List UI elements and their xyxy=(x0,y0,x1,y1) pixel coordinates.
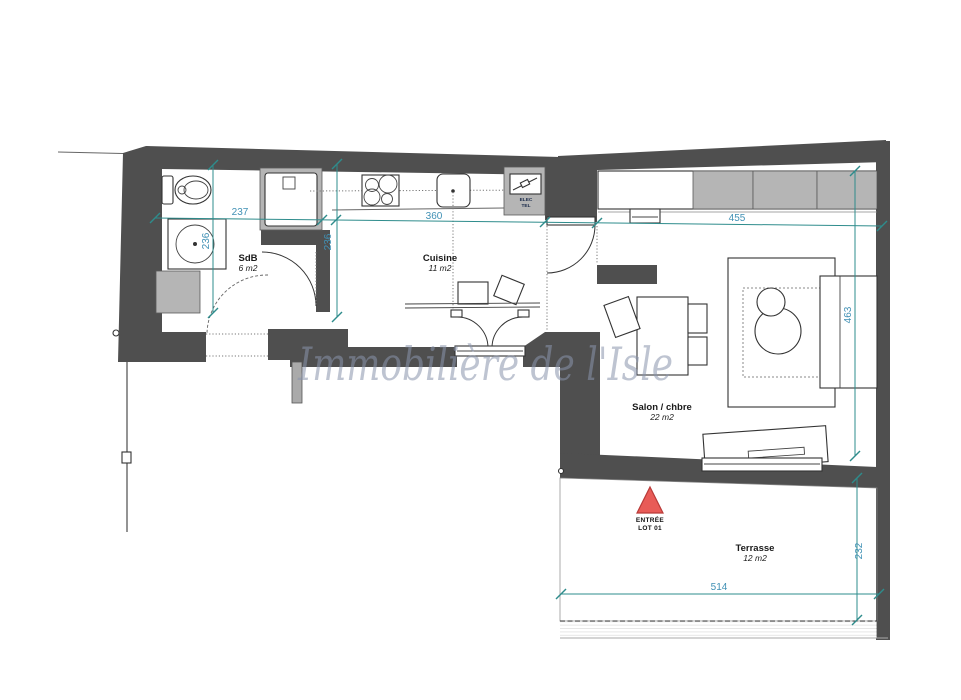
wall-top-left-wing xyxy=(146,146,560,175)
bed-headboard xyxy=(820,276,877,388)
wall-right xyxy=(876,141,890,640)
kitchen-fixtures: ELEC TEL xyxy=(310,167,545,311)
floor-plan-page: ELEC TEL xyxy=(0,0,961,700)
sdb-door-swing xyxy=(262,252,316,306)
closet-panel-1 xyxy=(693,171,753,209)
entrance-triangle-icon xyxy=(637,487,663,513)
kitchen-chair-icon xyxy=(494,275,524,304)
boundary-node-wall-corner xyxy=(113,330,119,336)
closet-panel-3 xyxy=(817,171,877,209)
entrance-marker: ENTRÉE LOT 01 xyxy=(636,487,665,532)
wall-end-node xyxy=(559,469,564,474)
wall-vestibule-top xyxy=(545,157,597,222)
terrace-decking xyxy=(560,478,877,621)
dining-chair-left xyxy=(604,297,640,338)
counter-edge xyxy=(332,208,504,210)
wall-salon-left-stub xyxy=(597,265,657,284)
french-door-left-leaf xyxy=(451,310,462,317)
kitchen-table-icon xyxy=(458,282,488,304)
terrace-decking-lower xyxy=(560,621,877,638)
dining-chair-right-1 xyxy=(688,304,707,333)
tel-label: TEL xyxy=(521,203,530,209)
entry-door-swing-dashed xyxy=(207,275,268,333)
boundary-node-bottom-left xyxy=(122,452,131,463)
wall-sdb-kitchen-top xyxy=(261,230,330,245)
dining-chair-right-2 xyxy=(688,337,707,365)
dim-salon-depth: 463 xyxy=(843,306,854,323)
floor-plan-canvas: ELEC TEL xyxy=(0,0,961,700)
salon-door-swing xyxy=(547,225,595,273)
entrance-label-2: LOT 01 xyxy=(638,525,662,532)
entrance-label-1: ENTRÉE xyxy=(636,515,665,524)
dim-cuisine-depth: 236 xyxy=(323,233,334,250)
salon-door-leaf xyxy=(547,217,595,225)
cuisine-area: 11 m2 xyxy=(429,263,452,273)
dim-terrasse-depth: 232 xyxy=(854,542,865,559)
bathroom-niche xyxy=(156,271,200,313)
agency-watermark: Immobilière de l'Isle xyxy=(297,337,673,391)
wall-top-salon xyxy=(558,140,886,174)
dim-sdb-depth: 236 xyxy=(201,232,212,249)
dim-salon-width: 455 xyxy=(729,213,746,224)
terrace xyxy=(560,478,888,638)
toilet-bowl-icon xyxy=(175,176,211,204)
dim-cuisine-width: 360 xyxy=(426,211,443,222)
washbasin-drain xyxy=(193,242,197,246)
wall-sdb-kitchen-strip xyxy=(316,245,330,312)
closet-panel-2 xyxy=(753,171,817,209)
shower-tray-icon xyxy=(265,173,317,226)
elec-label: ELEC xyxy=(520,197,533,203)
bed-pillow-small xyxy=(757,288,785,316)
bed-pillow-large xyxy=(755,308,801,354)
terrasse-area: 12 m2 xyxy=(743,553,767,563)
french-door-right-leaf xyxy=(518,310,529,317)
sdb-area: 6 m2 xyxy=(239,263,258,273)
closet-drawer xyxy=(630,209,660,223)
terrace-door-threshold xyxy=(702,458,822,471)
toilet-tank-icon xyxy=(162,176,173,204)
dim-terrasse-width: 514 xyxy=(711,582,728,593)
kitchen-lower-counter-1 xyxy=(405,303,540,304)
dim-sdb-width: 237 xyxy=(232,207,249,218)
salon-area: 22 m2 xyxy=(649,412,674,422)
salon-furniture xyxy=(559,171,878,474)
kitchen-lower-counter-2 xyxy=(405,307,540,308)
